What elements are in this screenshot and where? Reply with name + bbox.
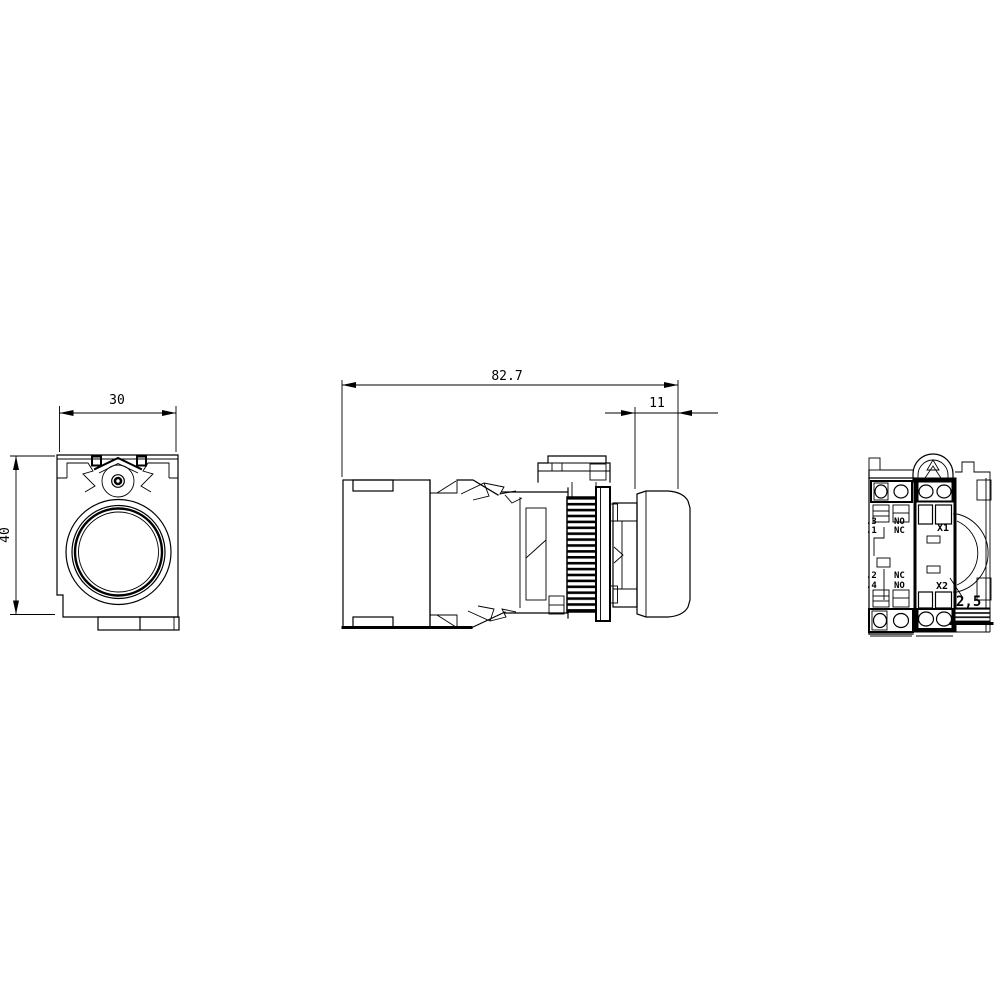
knurled-ring bbox=[567, 497, 596, 612]
contact-label-no-lower: NO bbox=[894, 581, 905, 591]
lamp-terminal-x1-label: X1 bbox=[937, 523, 949, 534]
contact-label-nc-upper: NC bbox=[894, 526, 905, 536]
wire-gauge-symbol bbox=[955, 608, 990, 622]
dimension-front-height-label: 40 bbox=[0, 527, 13, 543]
drawing-background bbox=[0, 0, 1000, 1000]
dimension-side-length-label: 82.7 bbox=[491, 369, 522, 384]
lamp-terminal-x2-label: X2 bbox=[936, 581, 948, 592]
terminal-label-dot4: .4 bbox=[866, 581, 877, 591]
technical-drawing-pushbutton: 30 40 bbox=[0, 0, 1000, 1000]
contact-label-nc-lower: NC bbox=[894, 571, 905, 581]
terminal-label-dot1: .1 bbox=[866, 526, 877, 536]
dimension-front-width-label: 30 bbox=[109, 393, 125, 408]
dimension-button-depth-label: 11 bbox=[649, 396, 665, 411]
terminal-label-dot2: .2 bbox=[866, 571, 877, 581]
